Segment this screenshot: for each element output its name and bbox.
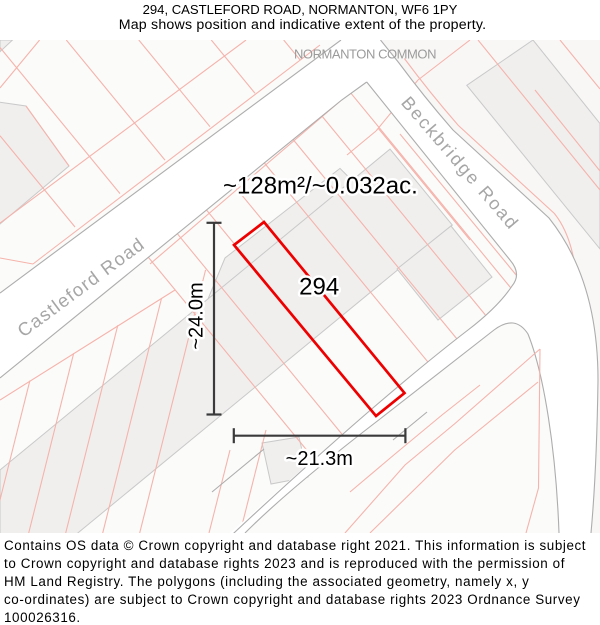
svg-text:294: 294 — [299, 274, 339, 301]
svg-text:~21.3m: ~21.3m — [286, 448, 353, 470]
svg-text:~24.0m: ~24.0m — [186, 282, 208, 349]
svg-text:~128m²/~0.032ac.: ~128m²/~0.032ac. — [223, 173, 418, 200]
svg-text:NORMANTON COMMON: NORMANTON COMMON — [294, 46, 436, 61]
